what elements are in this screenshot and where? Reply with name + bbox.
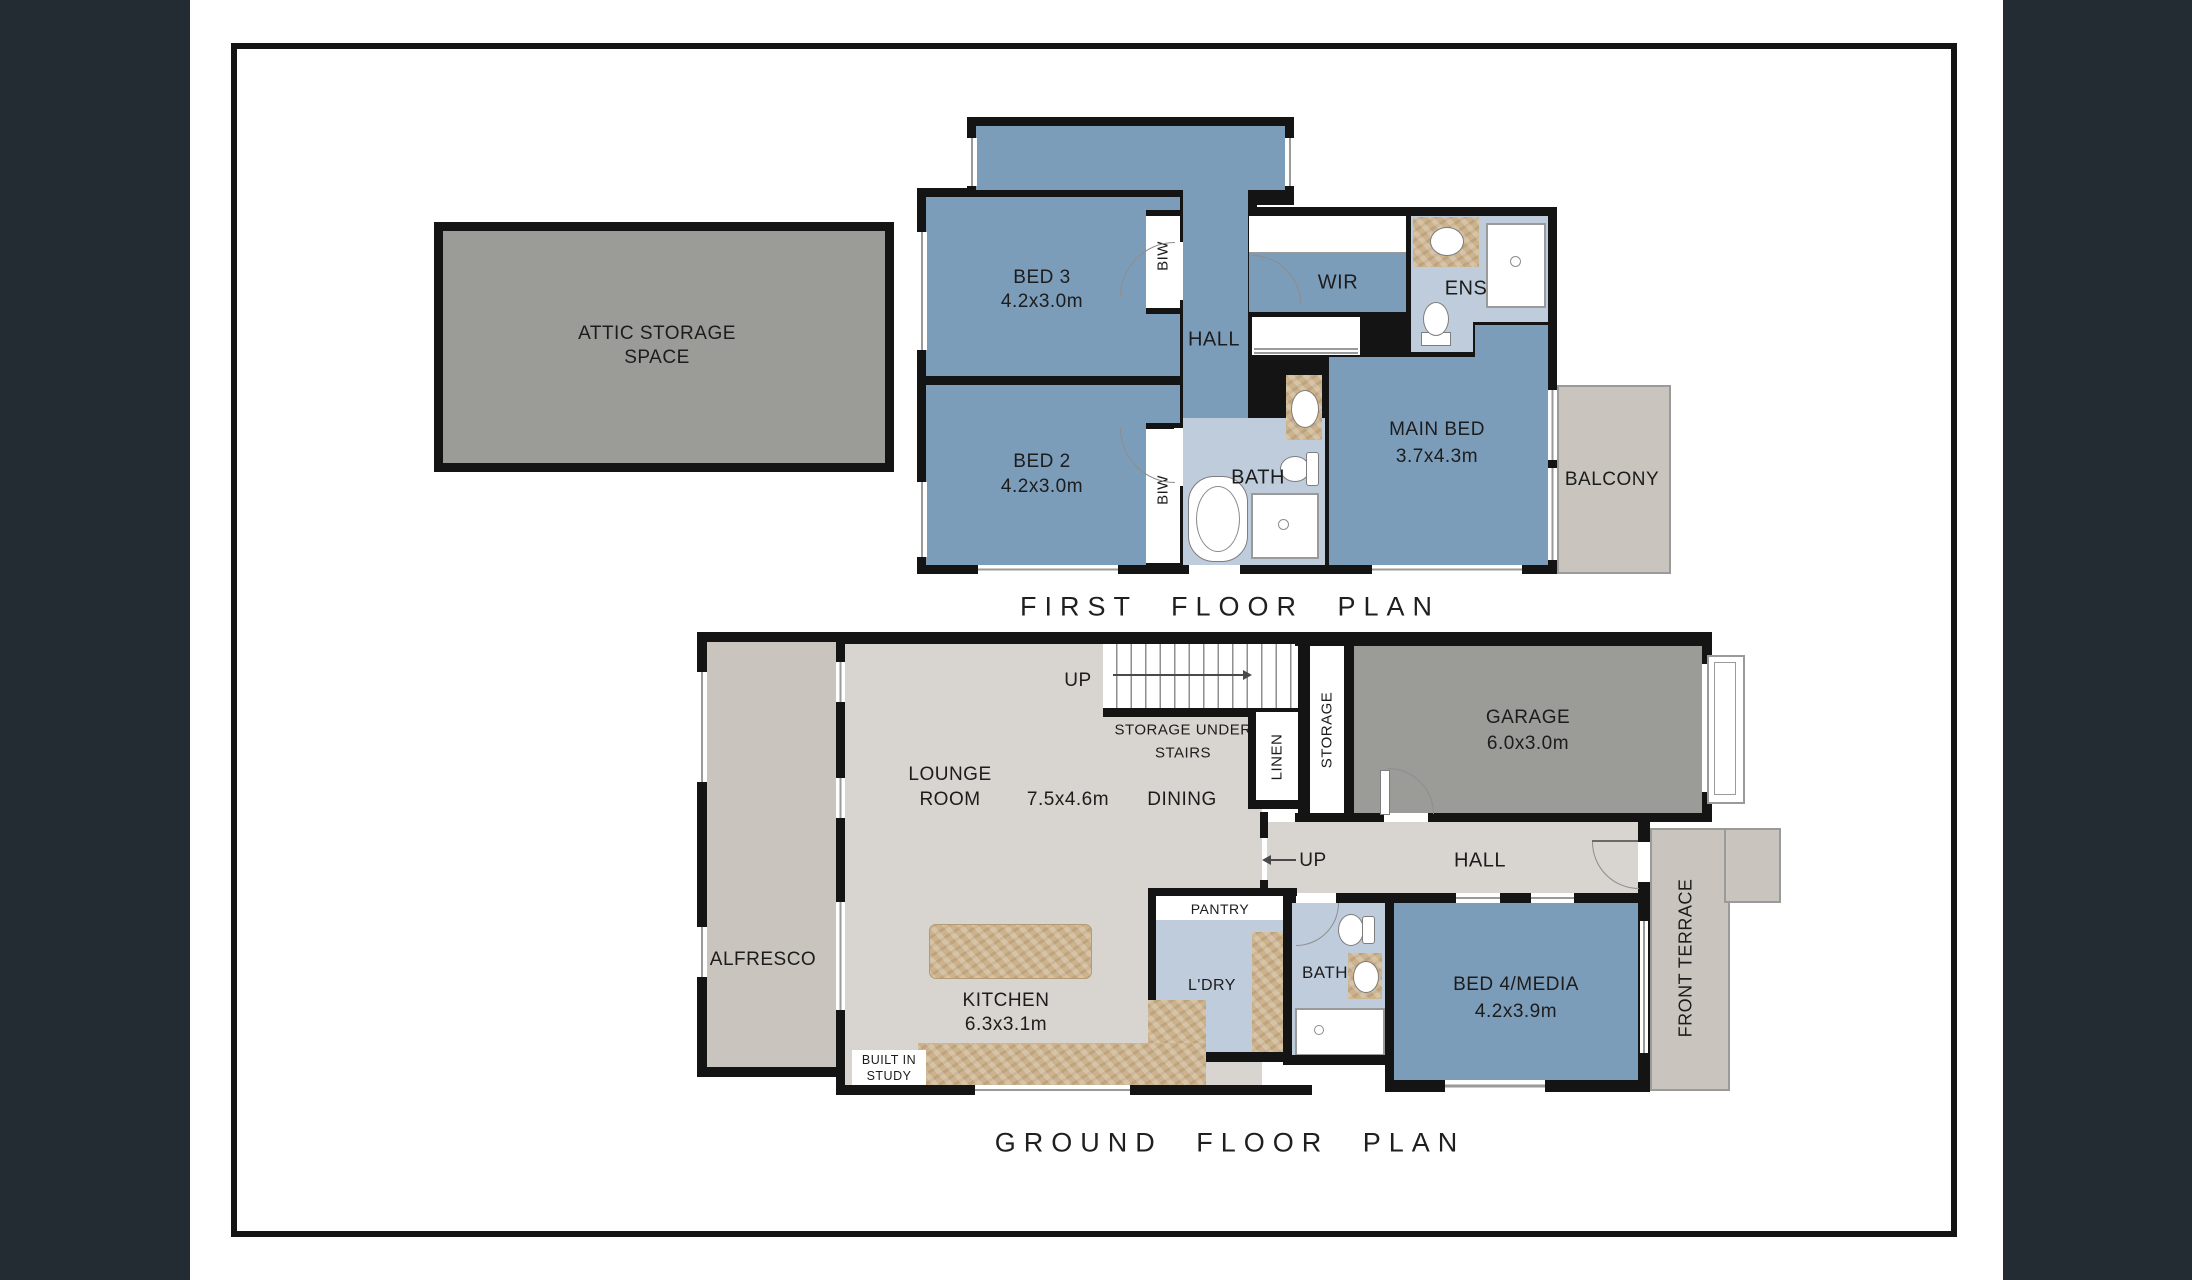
wall [697,632,707,672]
window [697,672,707,782]
balcony-door [1548,390,1557,460]
wall [697,1067,845,1077]
wall [1283,893,1292,1065]
sink-icon [1430,227,1464,256]
balcony-window [1548,468,1557,560]
kitchen-dims: 6.3x3.1m [965,1014,1047,1036]
door-gap [1174,428,1183,486]
window [975,1085,1130,1095]
wall [1298,632,1310,822]
door-gap [1174,242,1183,300]
bath-shower [1295,1008,1385,1056]
window [1640,921,1648,1053]
bed3-label: BED 3 [1013,267,1070,289]
wall [1638,822,1650,842]
storage-under-stairs-label-2: STAIRS [1155,745,1211,762]
wall [1295,813,1712,822]
wall [1248,800,1298,809]
room-alfresco [706,642,836,1067]
door-gap [1384,813,1428,822]
up-stairs-label: UP [1064,670,1091,692]
window [1372,565,1522,574]
lounge-label-2: ROOM [919,789,980,811]
window [967,138,977,186]
balcony-label: BALCONY [1565,469,1659,491]
bathtub-inner [1196,486,1240,552]
ground-floor-title: GROUND FLOOR PLAN [995,1128,1466,1159]
kitchen-counter-bottom [918,1043,1206,1085]
storage-under-stairs-label: STORAGE UNDER [1114,722,1251,739]
main-bed-dims: 3.7x4.3m [1396,446,1478,468]
garage-door-inner [1714,662,1736,795]
window [1285,138,1295,186]
bed2-dims: 4.2x3.0m [1001,476,1083,498]
lounge-label: LOUNGE [908,764,991,786]
study-label-2: STUDY [867,1069,912,1083]
bed4-label: BED 4/MEDIA [1453,974,1579,996]
bed2-label: BED 2 [1013,451,1070,473]
laundry-bench [1252,932,1283,1052]
room-bed2 [926,385,1180,565]
door-gap [1296,893,1336,903]
arrow-head-icon [1243,670,1252,680]
wall [1385,893,1394,1092]
wall [697,782,707,927]
shower-drain-icon [1314,1025,1324,1035]
window [917,232,927,350]
ens-label: ENS [1445,278,1488,301]
window [978,565,1118,574]
kitchen-island [929,924,1092,979]
study-label: BUILT IN [862,1053,916,1067]
front-terrace-label: FRONT TERRACE [1676,879,1697,1038]
first-floor-title: FIRST FLOOR PLAN [1020,592,1440,623]
wall [697,632,845,642]
sliding-door [1254,348,1358,350]
sliding-door [1254,352,1358,354]
toilet-icon [1423,302,1449,336]
wall [1148,888,1297,896]
dining-label: DINING [1147,789,1217,811]
hall-ground-label: HALL [1454,850,1506,873]
window [836,662,845,702]
wall [836,642,845,662]
arrow-head-icon [1262,855,1271,865]
ff-top-landing [976,126,1285,190]
front-door-gap [1638,842,1650,882]
window [1445,1080,1545,1092]
window [836,902,845,1010]
room-hall-ff [1183,188,1248,449]
pantry-label: PANTRY [1191,901,1250,917]
window [1456,893,1500,903]
wall [1344,640,1354,822]
bed3-dims: 4.2x3.0m [1001,291,1083,313]
hall-up-arrow [1270,859,1296,861]
wall [836,702,845,778]
wall [1638,882,1650,893]
toilet-tank-icon [1306,452,1319,486]
wir-closet [1249,216,1406,253]
wall [1148,888,1156,1000]
wall [1283,1055,1392,1065]
staircase [1103,644,1298,708]
linen-label: LINEN [1269,734,1286,781]
front-terrace-extension [1724,828,1781,903]
wall [836,632,1312,644]
sink-icon [1291,390,1319,428]
window [697,927,707,977]
wall [697,977,707,1077]
wir-label: WIR [1318,272,1358,295]
lounge-dims: 7.5x4.6m [1027,789,1109,811]
attic-storage-label: ATTIC STORAGE [578,323,736,345]
garage-label: GARAGE [1486,707,1570,729]
alfresco-label: ALFRESCO [710,949,816,971]
room-main-bed-upper [1475,325,1548,357]
laundry-label: L'DRY [1188,977,1236,995]
wall [836,1010,845,1085]
floorplan-page: ATTIC STORAGE SPACE BIW BIW [0,0,2192,1280]
window [836,778,845,818]
up-hall-label: UP [1299,850,1326,872]
window [1531,893,1574,903]
stairs-direction-arrow [1113,674,1243,676]
window [917,482,927,557]
bath-ground-label: BATH [1302,963,1348,983]
toilet-tank-icon [1362,916,1375,944]
wall [836,818,845,902]
main-bed-label: MAIN BED [1389,419,1485,441]
bath-ff-label: BATH [1231,467,1285,490]
shower-drain-icon [1510,256,1521,267]
wall [1295,632,1712,646]
garage-dims: 6.0x3.0m [1487,733,1569,755]
attic-storage-label-2: SPACE [624,347,690,369]
toilet-icon [1338,914,1364,946]
sink-icon [1353,961,1379,993]
shower-drain-icon [1278,519,1289,530]
hall-ff-label: HALL [1188,329,1240,352]
wall [1260,812,1268,838]
wall [1248,708,1256,808]
storage-label: STORAGE [1319,692,1336,769]
bed4-dims: 4.2x3.9m [1475,1001,1557,1023]
kitchen-label: KITCHEN [963,990,1050,1012]
